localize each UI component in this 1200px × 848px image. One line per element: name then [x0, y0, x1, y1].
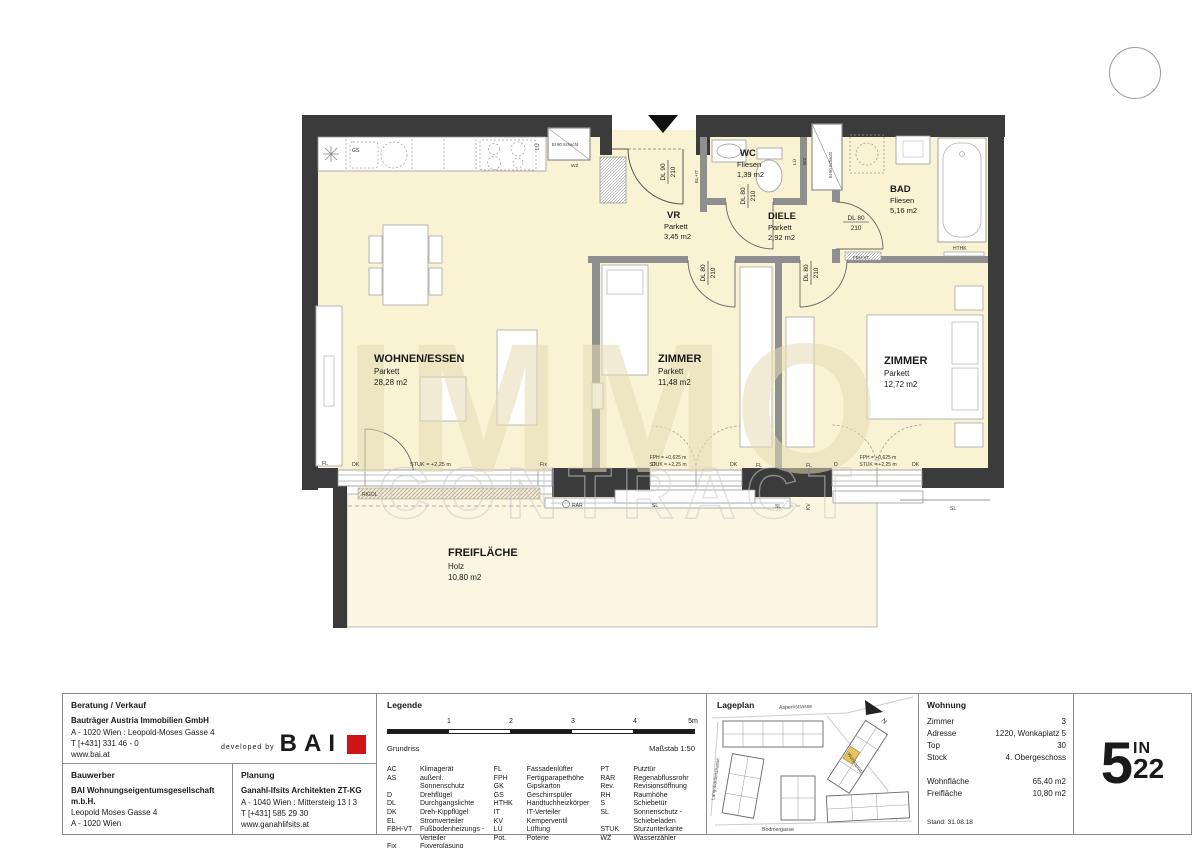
- legend-row: SLSonnenschutz -: [600, 809, 699, 818]
- room-area-zimmer1: 11,48 m2: [658, 378, 691, 387]
- ann-lu-bad: LÜ: [851, 128, 858, 135]
- logo-5: 5: [1101, 740, 1133, 788]
- legend-term: Regenabflussrohr: [633, 775, 688, 784]
- legend-abbr: GS: [494, 792, 527, 801]
- wohnung-row: Freifläche10,80 m2: [927, 788, 1066, 800]
- legend-abbr: HTHK: [494, 800, 527, 809]
- wohnung-row-value: 3: [1062, 716, 1066, 728]
- wohnung-row-label: Zimmer: [927, 716, 954, 728]
- legend-term: Wasserzähler: [633, 835, 676, 844]
- legend-row: Schiebeladen: [600, 818, 699, 827]
- drawing-type: Grundriss: [387, 744, 420, 753]
- site-building-center: [781, 776, 815, 820]
- wohnung-row-value: 10,80 m2: [1033, 788, 1066, 800]
- legend-abbr: Pot.: [494, 835, 527, 844]
- legend-term: Drehflügel: [420, 792, 452, 801]
- dim-wc-height: 210: [750, 190, 757, 201]
- wohnung-row-label: Stock: [927, 752, 947, 764]
- legend-term: Schiebetür: [633, 800, 666, 809]
- legend-abbr: STUK: [600, 826, 633, 835]
- legend-row: KVKemperventil: [494, 818, 593, 827]
- legend-row: WZWasserzähler: [600, 835, 699, 844]
- legend-term: Fußbodenheizungs -: [420, 826, 484, 835]
- scale-bar-segments: [387, 729, 695, 734]
- wohnung-row-value: 1220, Wonkaplatz 5: [995, 728, 1066, 740]
- legend-term: Lüftung: [527, 826, 550, 835]
- room-area-diele: 2,92 m2: [768, 233, 795, 242]
- planung-company: Ganahl-Ifsits Architekten ZT-KG: [241, 786, 368, 797]
- shaft-box-bath: [812, 124, 842, 190]
- ann-stuk-z2: STUK = +2,25 m: [859, 462, 896, 468]
- legend-abbr: AC: [387, 766, 420, 775]
- legend-row: FLFassadenlüfter: [494, 766, 593, 775]
- kitchen-counter: [318, 137, 546, 171]
- wohnung-row-label: Adresse: [927, 728, 956, 740]
- block-wohnung: Wohnung Zimmer3Adresse1220, Wonkaplatz 5…: [918, 694, 1073, 834]
- ann-dk-living: DK: [352, 462, 360, 468]
- dim-z1-size: DL 80: [700, 264, 707, 281]
- ann-rigol: RIGOL: [362, 492, 378, 498]
- legend-row: Pot.Poterie: [494, 835, 593, 844]
- north-label: N: [880, 717, 888, 725]
- legend-abbr: GK: [494, 783, 527, 792]
- legend-row: ELStromverteiler: [387, 818, 486, 827]
- ann-fbh-vt: FBH-VT: [853, 255, 870, 260]
- legend-term: Verteiler: [420, 835, 446, 844]
- wohnung-row-label: Top: [927, 740, 940, 752]
- legend-abbr: DK: [387, 809, 420, 818]
- ann-wz-wc: WZ: [802, 157, 808, 165]
- wohnung-rows: Zimmer3Adresse1220, Wonkaplatz 5Top30Sto…: [927, 716, 1066, 800]
- wohnung-row: Adresse1220, Wonkaplatz 5: [927, 728, 1066, 740]
- planung-website[interactable]: www.ganahlifsits.at: [241, 819, 368, 830]
- legend-col-2: PTPutztürRARRegenabflussrohrRev.Revision…: [600, 766, 699, 848]
- room-floor-wc: Fliesen: [737, 160, 761, 169]
- legend-abbr: D: [387, 792, 420, 801]
- bai-red-square-icon: [347, 735, 366, 754]
- legend-abbr: LÜ: [494, 826, 527, 835]
- legend-row: DKDreh-Kippflügel: [387, 809, 486, 818]
- room-floor-freiflaeche: Holz: [448, 562, 464, 571]
- ann-kv: KV: [806, 503, 812, 510]
- wohnung-row: Top30: [927, 740, 1066, 752]
- legend-abbr: EL: [387, 818, 420, 827]
- room-area-wohnen: 28,28 m2: [374, 378, 408, 387]
- legend-row: ASaußenl. Sonnenschutz: [387, 775, 486, 792]
- watermark: IMMO CONTRACT: [345, 306, 889, 534]
- ann-fl-mid2: FL: [806, 463, 812, 469]
- legend-term: IT-Verteiler: [527, 809, 561, 818]
- sink-star-icon: [323, 146, 339, 162]
- ann-wz1: WZ: [571, 163, 579, 169]
- wohnung-row-label: Wohnfläche: [927, 776, 969, 788]
- block-planung: Planung Ganahl-Ifsits Architekten ZT-KG …: [233, 764, 376, 834]
- bai-logo: developed by BAI: [221, 734, 366, 754]
- dim-entrance-size: DL 90: [660, 163, 667, 180]
- legend-term: Revisionsöffnung: [633, 783, 687, 792]
- scale-tick-2: 2: [509, 718, 513, 725]
- site-building-west: [722, 754, 764, 819]
- site-plan: N Aspernstrasse Bodmergasse Langobardens…: [707, 694, 919, 834]
- legend-row: GKGipskarton: [494, 783, 593, 792]
- wohnung-row-value: 65,40 m2: [1033, 776, 1066, 788]
- legend-row: LÜLüftung: [494, 826, 593, 835]
- ann-fix: Fix: [540, 462, 547, 468]
- legend-term: Kemperventil: [527, 818, 568, 827]
- ann-dk-z2: DK: [912, 462, 920, 468]
- legend-row: DDrehflügel: [387, 792, 486, 801]
- scale-tick-labels: 1 2 3 4 5m: [387, 718, 695, 727]
- bauwerber-title: Bauwerber: [71, 770, 224, 780]
- street-aspernstrasse: Aspernstrasse: [779, 704, 812, 711]
- floorplan-drawing: IMMO CONTRACT WOHNEN/ESSEN Parkett 28,28…: [0, 0, 1200, 690]
- block-legende: Legende 1 2 3 4 5m Grundriss Maßstab 1:5…: [376, 694, 706, 834]
- wohnung-row-value: 30: [1057, 740, 1066, 752]
- wohnung-row: Wohnfläche65,40 m2: [927, 776, 1066, 788]
- room-floor-zimmer1: Parkett: [658, 367, 684, 376]
- room-area-vr: 3,45 m2: [664, 232, 691, 241]
- dim-z1-height: 210: [710, 267, 717, 278]
- room-label-freiflaeche: FREIFLÄCHE: [448, 546, 518, 559]
- ann-dk-z1: DK: [730, 462, 738, 468]
- room-floor-vr: Parkett: [664, 222, 689, 231]
- legend-term: Gipskarton: [527, 783, 561, 792]
- legend-term: Dreh-Kippflügel: [420, 809, 468, 818]
- room-floor-bad: Fliesen: [890, 196, 914, 205]
- ann-fph-z1: FPH = +0,625 m: [650, 455, 687, 461]
- legend-abbr: Fix: [387, 843, 420, 848]
- scale-label: Maßstab 1:50: [649, 744, 695, 753]
- legend-term: Handtuchheizkörper: [527, 800, 590, 809]
- ann-shaft2: EI 90 Schacht: [828, 151, 833, 178]
- block-lageplan: Lageplan: [706, 694, 918, 834]
- legend-term: Fixverglasung: [420, 843, 464, 848]
- legend-abbr: WZ: [600, 835, 633, 844]
- block-project-logo: 5 IN 22: [1073, 694, 1191, 834]
- legend-row: Verteiler: [387, 835, 486, 844]
- legend-row: GSGeschirrspüler: [494, 792, 593, 801]
- room-floor-diele: Parkett: [768, 223, 793, 232]
- planung-title: Planung: [241, 770, 368, 780]
- room-label-wc: WC: [740, 148, 756, 159]
- legend-abbr: [600, 818, 633, 827]
- legend-term: Sonnenschutz -: [633, 809, 682, 818]
- legend-row: DLDurchgangslichte: [387, 800, 486, 809]
- legend-abbr: [387, 835, 420, 844]
- stand-date: Stand: 31.08.18: [927, 819, 973, 826]
- room-area-freiflaeche: 10,80 m2: [448, 573, 482, 582]
- title-block: Beratung / Verkauf Bauträger Austria Imm…: [62, 693, 1192, 835]
- legend-row: FPHFertigparapethöhe: [494, 775, 593, 784]
- legend-term: Sturzunterkante: [633, 826, 682, 835]
- site-building-south: [826, 792, 909, 822]
- planung-address: A - 1040 Wien : Mittersteig 13 I 3: [241, 797, 368, 808]
- bai-wordmark: BAI: [280, 734, 342, 754]
- dim-z2-size: DL 80: [803, 264, 810, 281]
- scale-bar: 1 2 3 4 5m: [387, 718, 695, 744]
- ann-stuk-z1: STUK = +2,25 m: [649, 462, 686, 468]
- ann-fl-mid1: FL: [756, 463, 762, 469]
- legende-title: Legende: [387, 700, 422, 710]
- legend-col-0: ACKlimagerätASaußenl. SonnenschutzDDrehf…: [387, 766, 486, 848]
- scale-tick-1: 1: [447, 718, 451, 725]
- wohnung-row-label: Freifläche: [927, 788, 962, 800]
- scale-tick-3: 3: [571, 718, 575, 725]
- legend-abbr: AS: [387, 775, 420, 792]
- legend-row: STUKSturzunterkante: [600, 826, 699, 835]
- ann-shaft1: EI 90 Schacht: [552, 142, 579, 147]
- room-area-bad: 5,16 m2: [890, 206, 917, 215]
- site-buildings: [722, 720, 910, 822]
- beratung-company: Bauträger Austria Immobilien GmbH: [71, 716, 368, 727]
- legend-row: PTPutztür: [600, 766, 699, 775]
- room-area-wc: 1,39 m2: [737, 170, 764, 179]
- dim-bad-size: DL 80: [847, 215, 864, 222]
- room-area-zimmer2: 12,72 m2: [884, 380, 918, 389]
- legend-term: Fertigparapethöhe: [527, 775, 584, 784]
- legend-row: FixFixverglasung: [387, 843, 486, 848]
- block-bauwerber: Bauwerber BAI Wohnungseigentumsgesellsch…: [63, 764, 233, 834]
- ann-fl-left: FL: [322, 461, 328, 467]
- legend-abbr: KV: [494, 818, 527, 827]
- ann-sl-1: SL: [652, 503, 658, 509]
- legend-abbr: FL: [494, 766, 527, 775]
- room-label-wohnen: WOHNEN/ESSEN: [374, 353, 465, 365]
- legend-term: Stromverteiler: [420, 818, 464, 827]
- legend-term: außenl. Sonnenschutz: [420, 775, 486, 792]
- dim-wc-size: DL 80: [740, 187, 747, 204]
- ann-hthk: HTHK: [953, 246, 967, 252]
- room-floor-zimmer2: Parkett: [884, 369, 910, 378]
- bauwerber-company-1: BAI Wohnungseigentumsgesellschaft: [71, 786, 224, 797]
- legend-abbr: SL: [600, 809, 633, 818]
- legend-abbr: FPH: [494, 775, 527, 784]
- legend-term: Durchgangslichte: [420, 800, 474, 809]
- wohnung-row-value: 4. Obergeschoss: [1006, 752, 1066, 764]
- ann-stuk-living: STUK = +2,25 m: [410, 462, 451, 468]
- legend-row: FBH-VTFußbodenheizungs -: [387, 826, 486, 835]
- legend-columns: ACKlimagerätASaußenl. SonnenschutzDDrehf…: [387, 766, 699, 848]
- legend-abbr: RAR: [600, 775, 633, 784]
- legend-abbr: IT: [494, 809, 527, 818]
- legend-abbr: RH: [600, 792, 633, 801]
- legend-abbr: DL: [387, 800, 420, 809]
- legend-term: Poterie: [527, 835, 549, 844]
- dim-entrance-height: 210: [670, 166, 677, 177]
- legend-row: SSchiebetür: [600, 800, 699, 809]
- street-langobardenstrasse: Langobardenstrasse: [710, 757, 720, 800]
- vr-wardrobe: [600, 157, 626, 203]
- legend-abbr: FBH-VT: [387, 826, 420, 835]
- legend-term: Geschirrspüler: [527, 792, 573, 801]
- site-building-subject: [827, 720, 887, 793]
- room-label-vr: VR: [667, 210, 680, 221]
- floorplan-sheet: { "colors": { "wall_dark": "#3b3b3b", "w…: [0, 0, 1200, 848]
- beratung-title: Beratung / Verkauf: [71, 700, 368, 710]
- ann-rar: RAR: [572, 503, 583, 509]
- scale-tick-5: 5m: [688, 718, 698, 725]
- street-bodmergasse: Bodmergasse: [762, 827, 794, 833]
- room-floor-wohnen: Parkett: [374, 367, 400, 376]
- wohnung-title: Wohnung: [927, 700, 966, 710]
- wohnung-row: Zimmer3: [927, 716, 1066, 728]
- legend-row: ACKlimagerät: [387, 766, 486, 775]
- room-label-zimmer2: ZIMMER: [884, 355, 927, 367]
- planung-phone: T [+431] 585 29 30: [241, 808, 368, 819]
- legend-abbr: S: [600, 800, 633, 809]
- legend-row: HTHKHandtuchheizkörper: [494, 800, 593, 809]
- legend-row: Rev.Revisionsöffnung: [600, 783, 699, 792]
- legend-row: RHRaumhöhe: [600, 792, 699, 801]
- scale-tick-4: 4: [633, 718, 637, 725]
- ann-sl-3: SL: [950, 506, 956, 512]
- ann-lu-wc: LÜ: [791, 158, 798, 165]
- bauwerber-city: A - 1020 Wien: [71, 818, 224, 829]
- ann-el-it: EL+IT: [694, 170, 700, 183]
- bai-developed-by: developed by: [221, 744, 275, 754]
- site-building-north: [723, 721, 823, 747]
- ann-gs: GS: [352, 148, 360, 154]
- legend-term: Fassadenlüfter: [527, 766, 573, 775]
- legend-col-1: FLFassadenlüfterFPHFertigparapethöheGKGi…: [494, 766, 593, 848]
- legend-abbr: Rev.: [600, 783, 633, 792]
- legend-abbr: PT: [600, 766, 633, 775]
- legend-row: RARRegenabflussrohr: [600, 775, 699, 784]
- legend-row: ITIT-Verteiler: [494, 809, 593, 818]
- wohnung-row: Stock4. Obergeschoss: [927, 752, 1066, 764]
- block-beratung-verkauf: Beratung / Verkauf Bauträger Austria Imm…: [63, 694, 376, 764]
- bauwerber-company-2: m.b.H.: [71, 797, 224, 808]
- room-label-zimmer1: ZIMMER: [658, 353, 701, 365]
- room-label-bad: BAD: [890, 184, 911, 195]
- ann-fph-z2: FPH = +0,625 m: [860, 455, 897, 461]
- ann-lu-kitchen: LÜ: [534, 143, 541, 150]
- legend-term: Schiebeladen: [633, 818, 675, 827]
- logo-22: 22: [1133, 756, 1164, 782]
- project-logo-5in22: 5 IN 22: [1101, 740, 1164, 788]
- ann-sl-2: SL: [775, 504, 781, 510]
- legend-term: Putztür: [633, 766, 655, 775]
- ann-d-z2: D: [834, 462, 838, 468]
- dim-bad-height: 210: [851, 225, 862, 232]
- legend-term: Raumhöhe: [633, 792, 667, 801]
- legend-term: Klimagerät: [420, 766, 453, 775]
- bauwerber-address: Leopold Moses Gasse 4: [71, 807, 224, 818]
- room-label-diele: DIELE: [768, 211, 796, 222]
- dim-z2-height: 210: [813, 267, 820, 278]
